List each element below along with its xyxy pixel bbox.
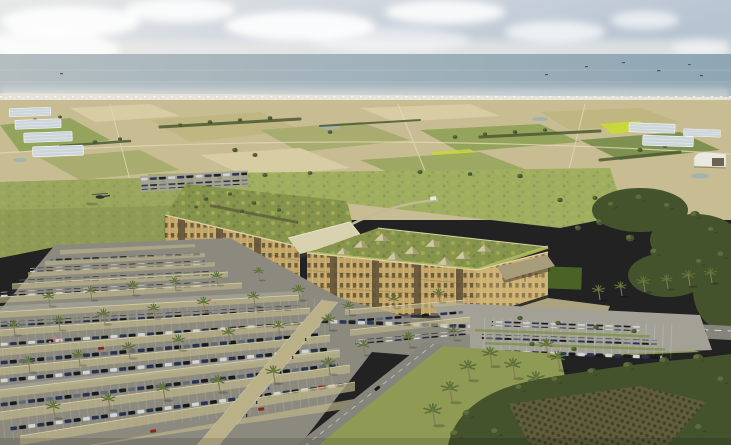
vignette <box>0 438 731 445</box>
hangar-shed <box>694 152 726 168</box>
aerial-campus-rendering <box>0 0 731 445</box>
rendering-canvas <box>0 0 731 445</box>
